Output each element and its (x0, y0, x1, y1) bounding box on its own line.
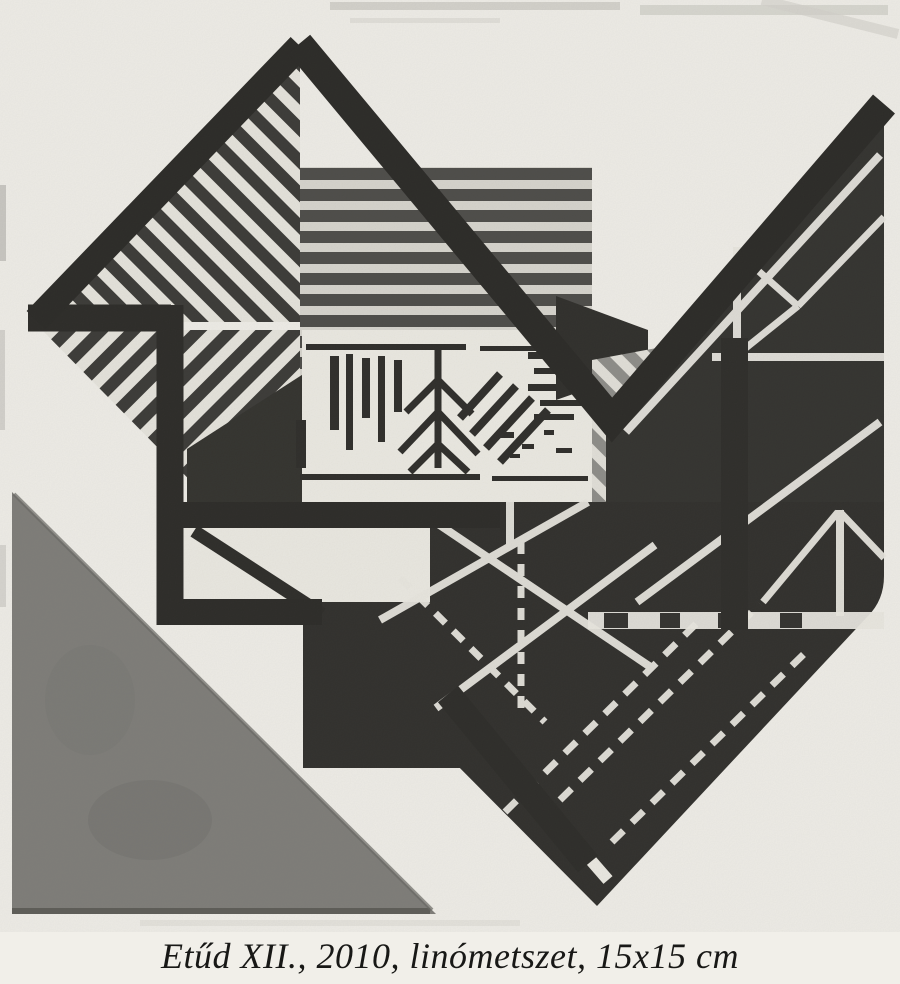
linocut-print-image (0, 0, 900, 932)
paper-grain (0, 0, 900, 932)
artwork-linocut-print (0, 0, 900, 932)
book-page: Etűd XII., 2010, linómetszet, 15x15 cm (0, 0, 900, 984)
figure-caption: Etűd XII., 2010, linómetszet, 15x15 cm (0, 928, 900, 984)
